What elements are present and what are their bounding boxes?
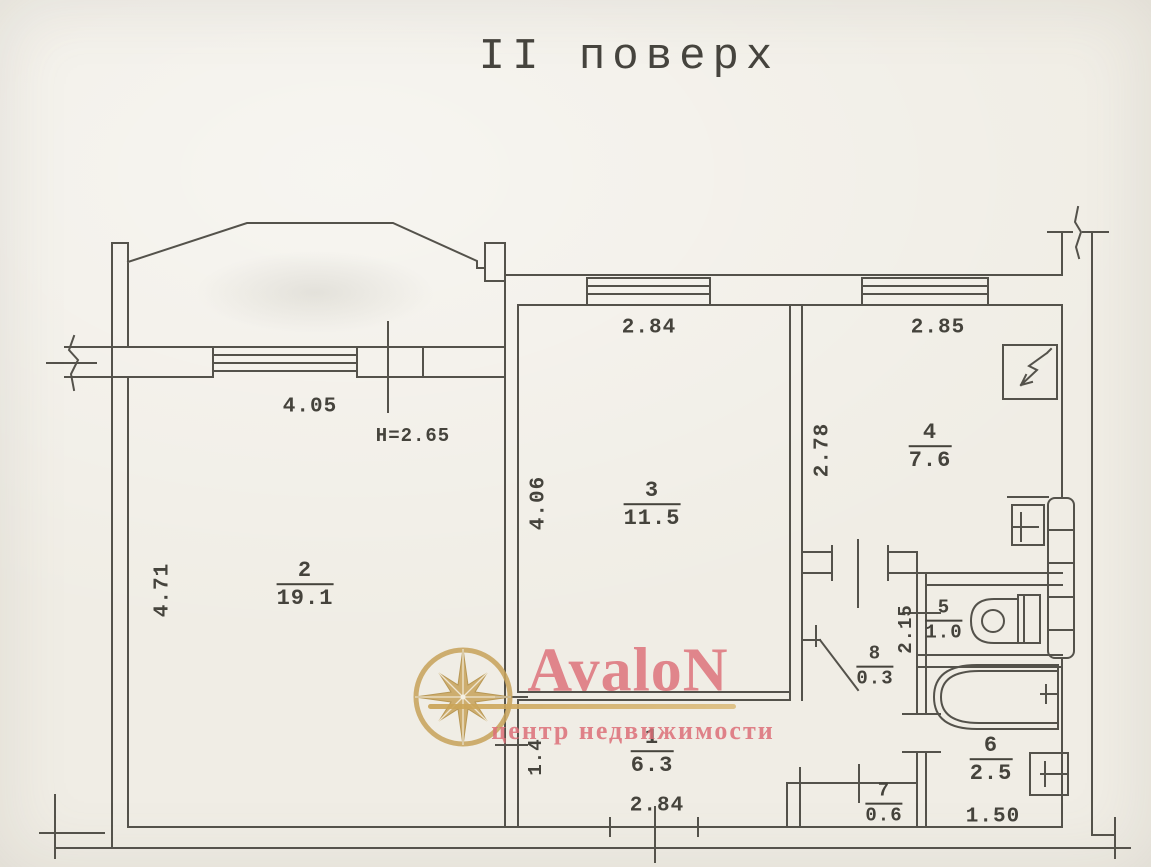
electric-panel-icon	[1003, 345, 1057, 399]
room-7-number: 7	[865, 781, 902, 805]
dimension-room4-depth: 2.78	[812, 423, 835, 477]
duct-shaft	[1048, 498, 1074, 658]
room-8-area: 0.3	[856, 668, 893, 691]
watermark-brand: AvaloN	[527, 636, 728, 707]
room-5-label: 5 1.0	[925, 598, 962, 645]
room-2-label: 2 19.1	[277, 558, 334, 612]
room-5-number: 5	[925, 598, 962, 622]
room-2-area: 19.1	[277, 586, 334, 612]
room-5-area: 1.0	[925, 622, 962, 645]
dimension-hall-width: 2.84	[630, 795, 684, 818]
toilet-fixture	[971, 595, 1040, 643]
dimension-room4-width: 2.85	[911, 317, 965, 340]
dimension-room3-depth: 4.06	[528, 476, 551, 530]
room-4-number: 4	[909, 420, 952, 447]
floor-title: II поверх	[479, 32, 780, 82]
room-2-number: 2	[277, 558, 334, 585]
room-3-label: 3 11.5	[624, 478, 681, 532]
room-6-number: 6	[970, 733, 1013, 760]
room-3-area: 11.5	[624, 506, 681, 532]
room-8-label: 8 0.3	[856, 644, 893, 691]
sink-fixture-kitchen	[1012, 505, 1044, 545]
room-6-area: 2.5	[970, 761, 1013, 787]
room-6-label: 6 2.5	[970, 733, 1013, 787]
watermark-tagline: центр недвижимости	[491, 716, 774, 746]
scanned-floor-plan-page: II поверх 2 19.1 3 11.5 4 7.6 5 1.0 8 0.…	[0, 0, 1151, 867]
room-4-label: 4 7.6	[909, 420, 952, 474]
dimension-room2-depth: 4.71	[152, 563, 175, 617]
room-1-area: 6.3	[631, 753, 674, 779]
dimension-room3-width: 2.84	[622, 317, 676, 340]
room-8-number: 8	[856, 644, 893, 668]
walls	[40, 207, 1130, 862]
room-7-label: 7 0.6	[865, 781, 902, 828]
dimension-wc-depth: 2.15	[895, 604, 917, 654]
room-7-area: 0.6	[865, 805, 902, 828]
dimension-room2-width: 4.05	[283, 396, 337, 419]
room-4-area: 7.6	[909, 448, 952, 474]
dimension-bath-width: 1.50	[966, 806, 1020, 829]
room-3-number: 3	[624, 478, 681, 505]
dimension-ceiling-height: H=2.65	[376, 425, 450, 447]
bathtub-fixture	[934, 665, 1058, 729]
